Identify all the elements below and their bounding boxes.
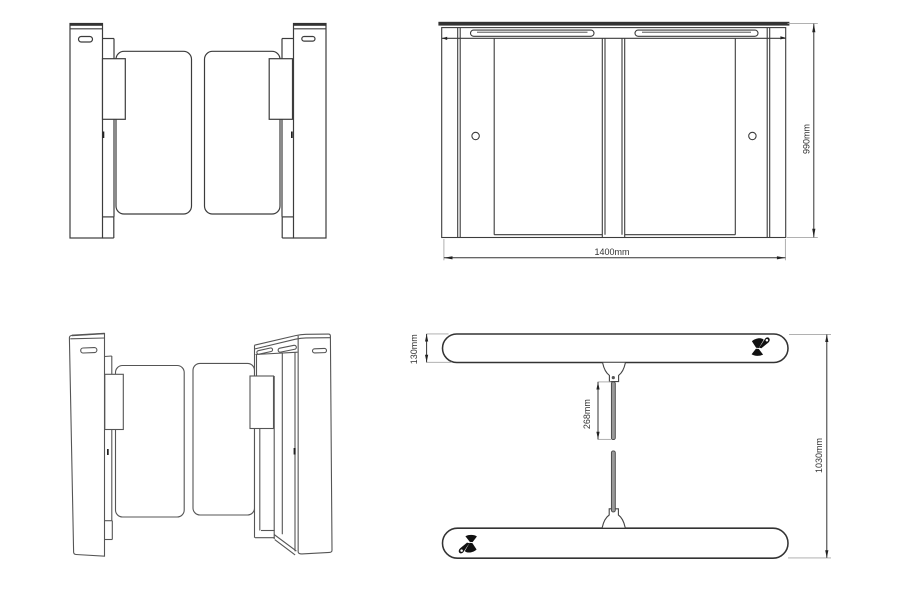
- svg-text:130mm: 130mm: [409, 334, 419, 364]
- svg-text:1400mm: 1400mm: [594, 247, 629, 257]
- svg-text:268mm: 268mm: [582, 399, 592, 429]
- svg-text:1030mm: 1030mm: [814, 438, 824, 473]
- svg-text:990mm: 990mm: [802, 124, 812, 154]
